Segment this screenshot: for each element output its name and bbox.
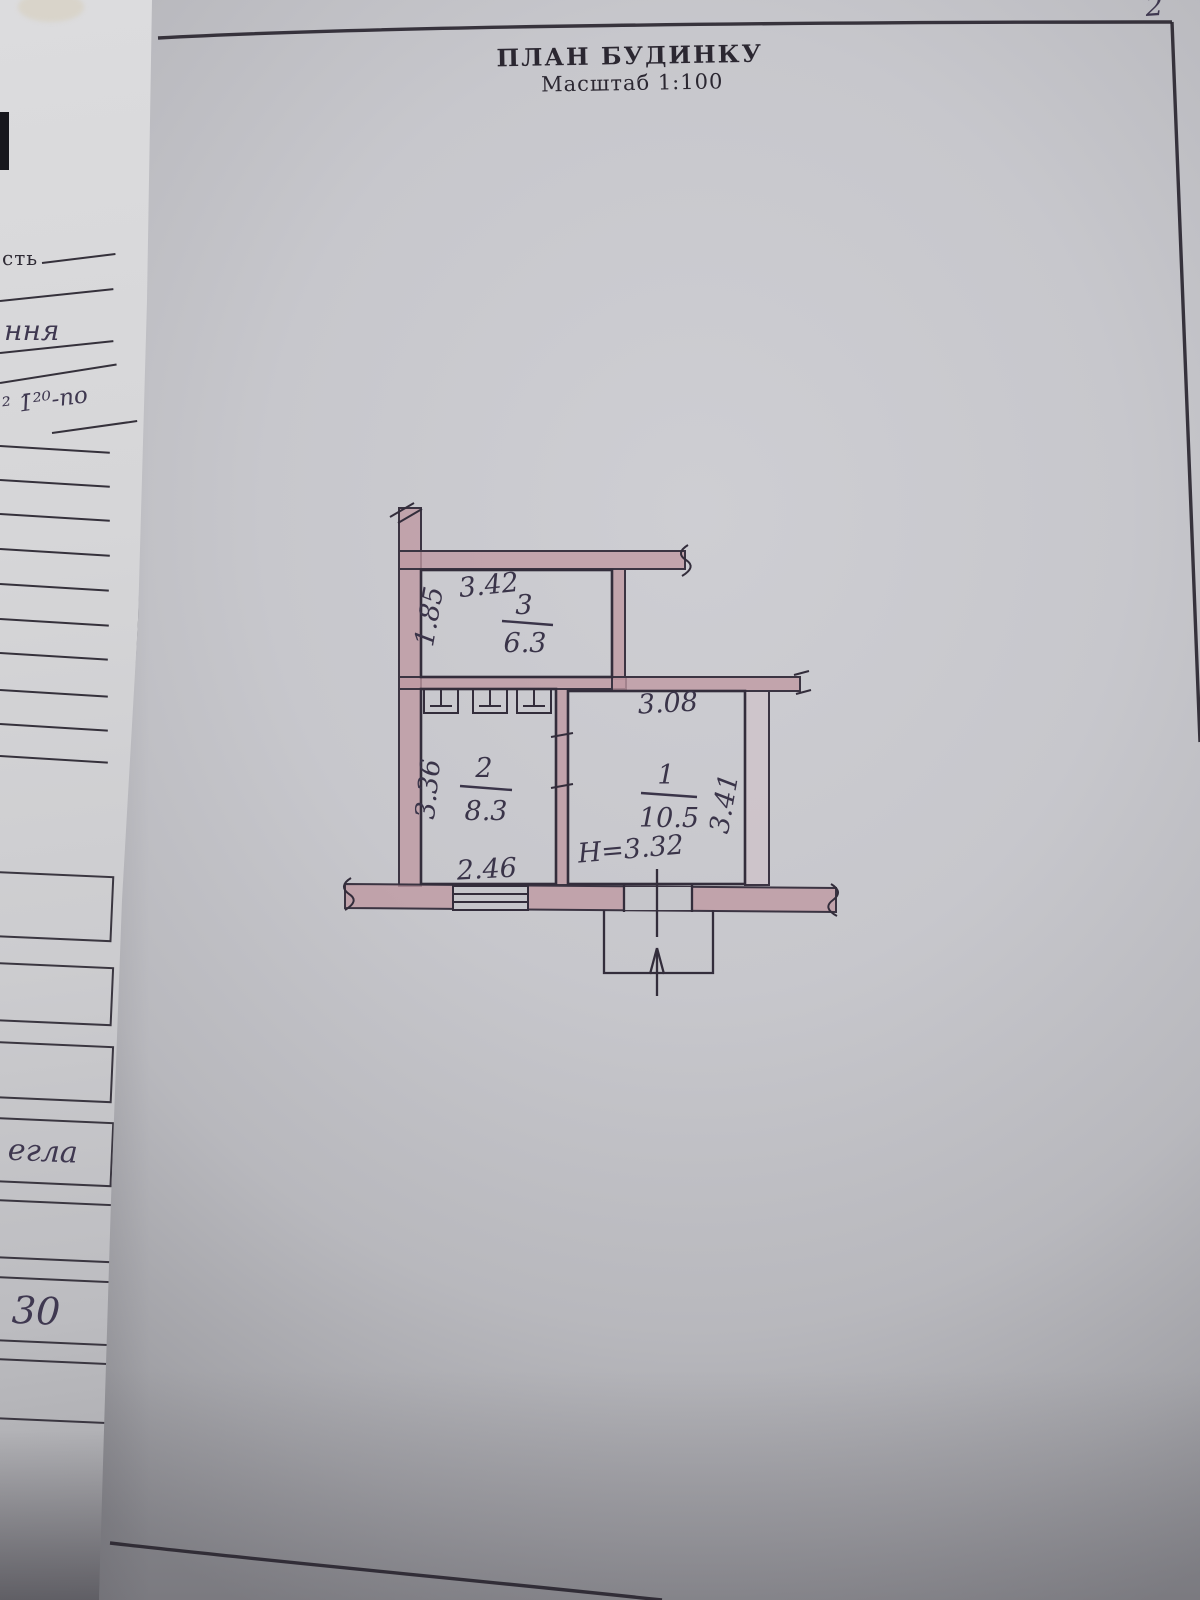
room1-fraction-line: [641, 793, 697, 797]
room3-width-dim: 3.42: [457, 567, 520, 604]
porch-outline: [604, 910, 713, 973]
floor-plan: 3.42 1.85 3 6.3 3.36 2 8.3 2.46 3.08 1 1…: [344, 503, 838, 996]
vent-symbol: [473, 689, 507, 713]
room3-number: 3: [515, 590, 532, 621]
room1-right-wall: [745, 691, 769, 885]
room2-depth-dim: 3.36: [410, 758, 447, 821]
frame-top-border: [158, 22, 1172, 38]
porch: [604, 910, 713, 996]
plan-labels: 3.42 1.85 3 6.3 3.36 2 8.3 2.46 3.08 1 1…: [409, 567, 745, 887]
vent-symbol: [517, 689, 551, 713]
page-number: 2: [1143, 0, 1164, 23]
ceiling-height-note: H=3.32: [575, 829, 685, 869]
frame-right-border: [1172, 22, 1200, 742]
photographed-document: сть ння ² 1̄²⁰-по егла 30: [0, 0, 1200, 1600]
room2-area: 8.3: [465, 796, 508, 827]
room-outlines: [421, 570, 745, 884]
bottom-outer-wall: [345, 884, 836, 912]
room1-width-dim: 3.08: [637, 686, 699, 720]
room3-bottom-wall: [399, 677, 626, 689]
room1-area: 10.5: [639, 803, 699, 834]
vent-symbols: [424, 689, 551, 713]
heading: ПЛАН БУДИНКУ Масштаб 1:100: [496, 39, 763, 98]
plan-title: ПЛАН БУДИНКУ: [496, 39, 763, 73]
room3-area: 6.3: [504, 628, 547, 659]
room1-depth-dim: 3.41: [704, 771, 745, 836]
room2-width-dim: 2.46: [455, 852, 518, 886]
plan-scale: Масштаб 1:100: [541, 69, 724, 96]
room2-number: 2: [474, 753, 492, 784]
room1-number: 1: [657, 760, 674, 791]
vent-symbol: [424, 689, 458, 713]
room3-right-wall: [612, 569, 625, 679]
room3-fraction-line: [502, 621, 553, 625]
frame-bottom-border: [110, 1543, 662, 1600]
ink-layer: 2 ПЛАН БУДИНКУ Масштаб 1:100: [0, 0, 1200, 1600]
window-cutout: [454, 887, 527, 909]
room2-fraction-line: [460, 786, 512, 790]
top-outer-wall: [399, 551, 685, 569]
